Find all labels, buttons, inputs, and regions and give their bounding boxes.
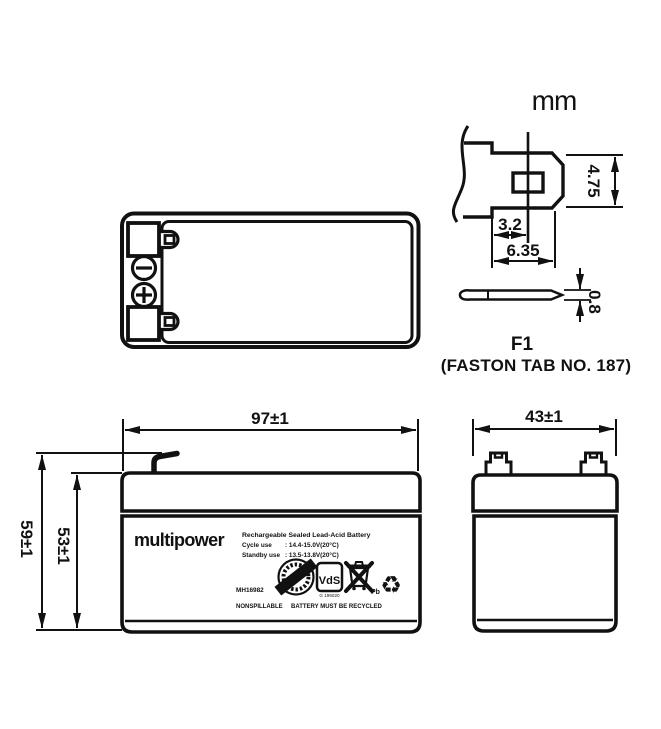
battery-dimension-drawing: mm	[0, 0, 661, 729]
recycle-icon: ♻	[380, 571, 402, 599]
plus-terminal-icon	[133, 284, 156, 307]
dim-front-width: 97±1	[123, 409, 418, 471]
front-view: multipower Rechargeable Sealed Lead-Acid…	[122, 454, 420, 633]
dim-label-59: 59±1	[17, 520, 36, 558]
standby-use-value: : 13.5-13.8V(20°C)	[285, 551, 339, 559]
dim-label-53: 53±1	[54, 527, 73, 565]
vds-number: G 196020	[319, 593, 340, 598]
nonspillable-note: NONSPILLABLE	[236, 604, 283, 610]
terminal-name: F1	[511, 334, 534, 355]
terminal-detail-view: 4.75 3.2 6.35 0.8 F1 (FASTON TAB NO. 187…	[441, 126, 631, 375]
side-lid	[473, 475, 617, 511]
brand-logo: multipower	[134, 530, 225, 550]
top-view-cover-outline	[162, 222, 412, 343]
model-number: MH16982	[236, 587, 264, 594]
dim-label-6-35: 6.35	[506, 241, 539, 260]
dim-tab-widths: 3.2 6.35	[492, 211, 555, 268]
dim-label-43: 43±1	[525, 407, 563, 426]
dim-label-97: 97±1	[251, 409, 289, 428]
top-view	[122, 214, 419, 348]
dim-label-3-2: 3.2	[498, 215, 522, 234]
vds-mark: VdS G 196020	[317, 563, 342, 598]
terminal-type: (FASTON TAB NO. 187)	[441, 356, 631, 375]
dim-label-4-75: 4.75	[584, 164, 603, 197]
side-view	[473, 453, 617, 631]
front-terminal-tab	[154, 454, 177, 474]
front-lid	[122, 473, 420, 511]
break-line	[453, 126, 468, 222]
pb-label: Pb	[371, 589, 380, 596]
dim-tab-height: 4.75	[566, 155, 623, 207]
dim-tab-thickness: 0.8	[564, 268, 604, 322]
minus-terminal-icon	[133, 257, 156, 280]
technical-drawing-page: mm	[0, 0, 661, 729]
side-terminal-left	[486, 453, 511, 475]
standby-use-label: Standby use	[242, 552, 280, 559]
dim-front-case-height: 53±1	[54, 473, 122, 628]
cycle-use-value: : 14.4-15.0V(20°C)	[285, 541, 339, 549]
cycle-use-label: Cycle use	[242, 542, 272, 549]
dim-side-width: 43±1	[473, 407, 616, 456]
unit-label: mm	[532, 85, 577, 116]
dim-label-0-8: 0.8	[585, 290, 604, 314]
tab-edge-profile	[460, 290, 562, 299]
recycle-note: BATTERY MUST BE RECYCLED	[291, 604, 383, 610]
side-body	[474, 516, 616, 631]
product-title: Rechargeable Sealed Lead-Acid Battery	[242, 532, 371, 539]
vds-text: VdS	[319, 575, 340, 587]
side-terminal-right	[581, 453, 606, 475]
